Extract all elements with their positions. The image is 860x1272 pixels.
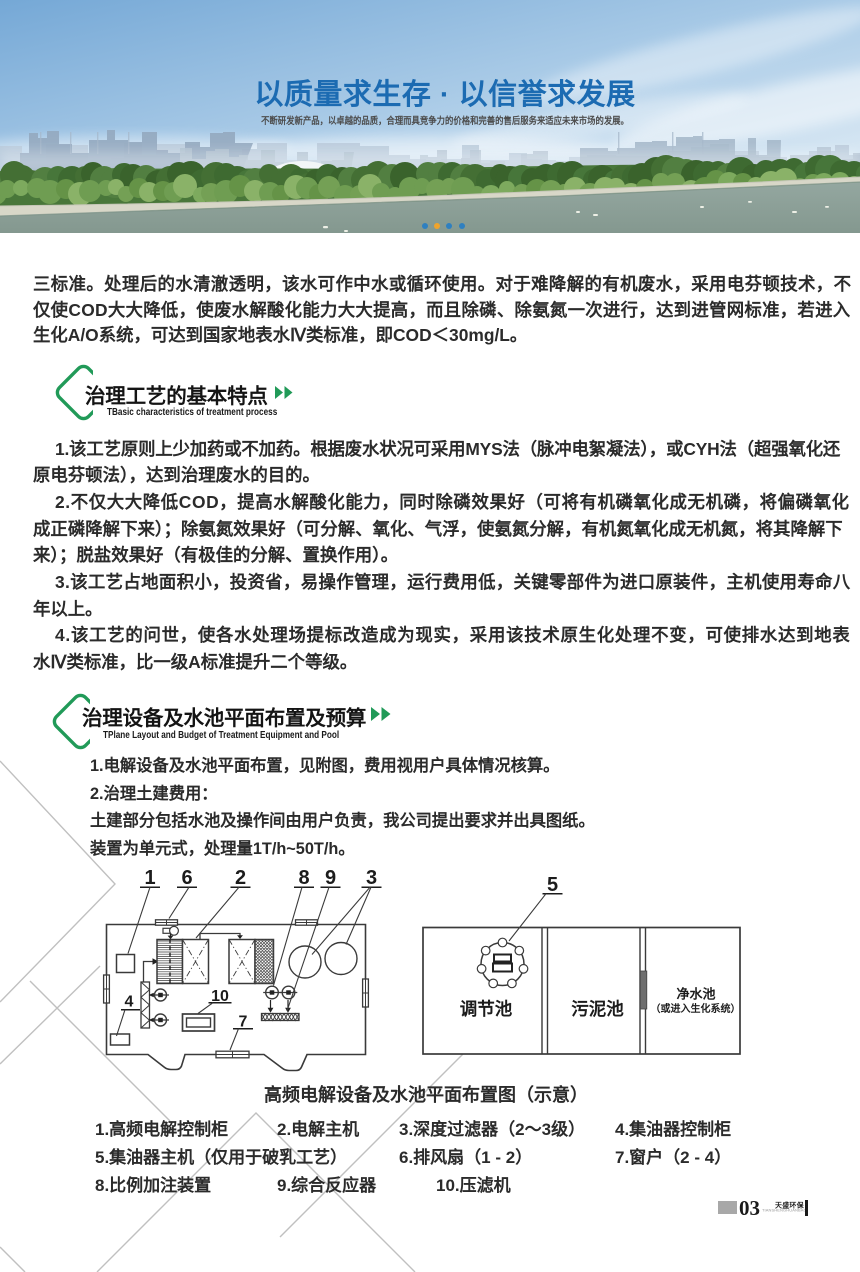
svg-text:1: 1 — [144, 867, 155, 889]
svg-text:4: 4 — [125, 994, 134, 1011]
svg-text:污泥池: 污泥池 — [571, 999, 624, 1019]
svg-text:（或进入生化系统）: （或进入生化系统） — [651, 1002, 741, 1015]
svg-text:净水池: 净水池 — [676, 987, 715, 1002]
svg-text:5: 5 — [547, 874, 558, 896]
svg-text:调节池: 调节池 — [460, 999, 513, 1019]
svg-text:2: 2 — [235, 867, 246, 889]
svg-text:6: 6 — [181, 867, 192, 889]
svg-text:9: 9 — [325, 867, 336, 889]
svg-text:3: 3 — [366, 867, 377, 889]
svg-text:8: 8 — [298, 867, 309, 889]
